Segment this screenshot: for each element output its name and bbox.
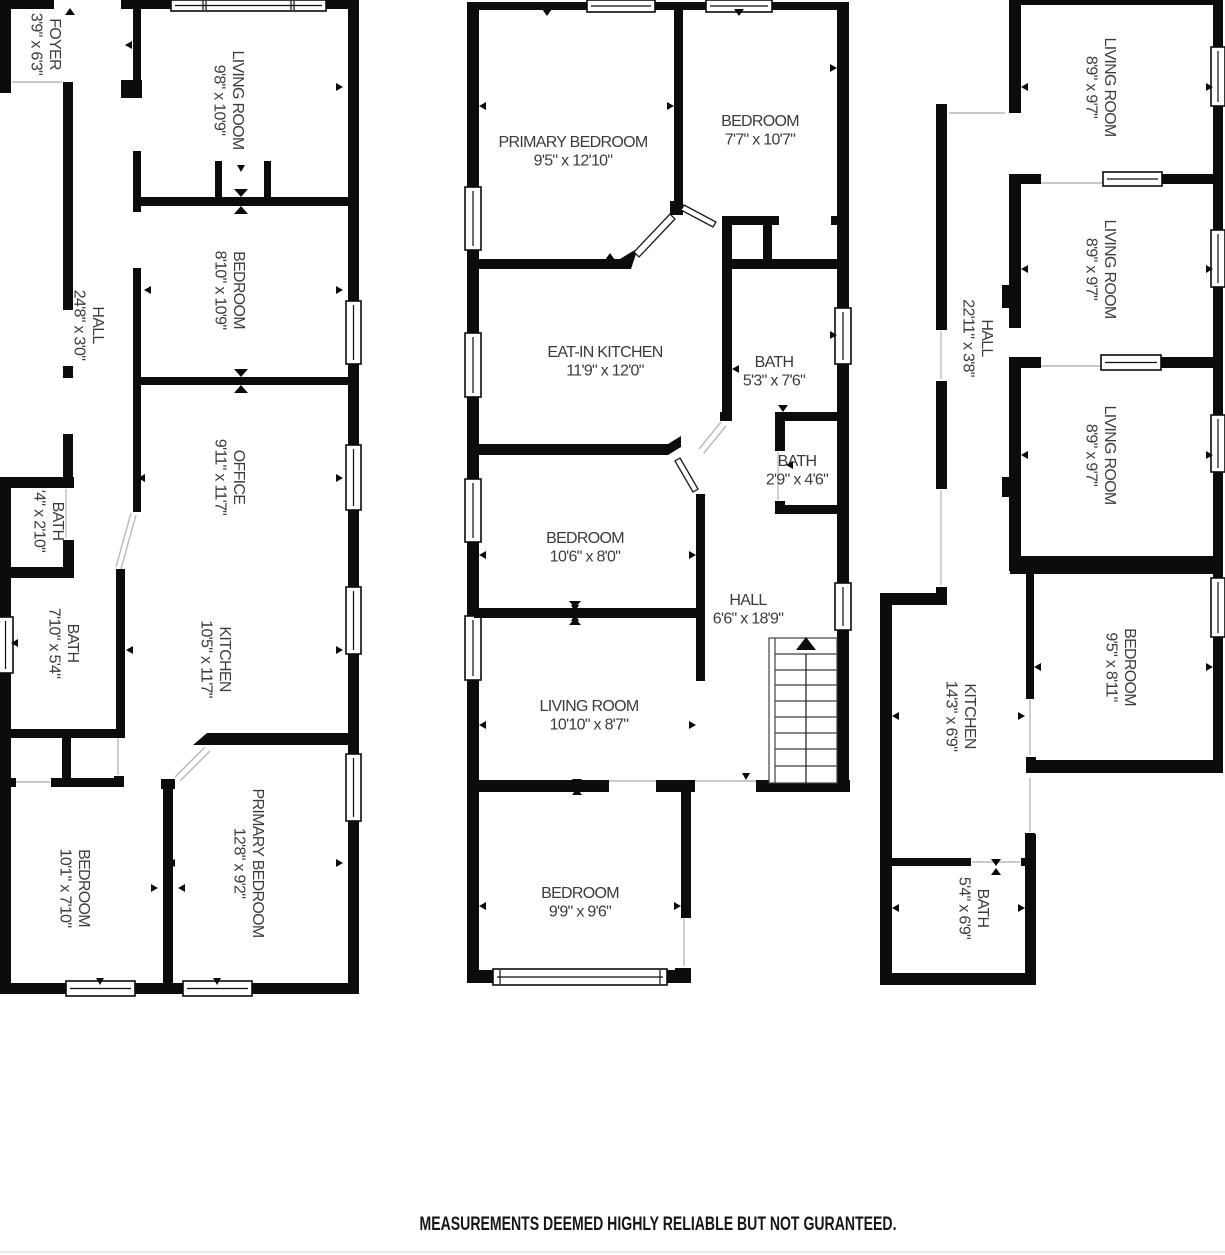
svg-text:2'9" x 4'6": 2'9" x 4'6"	[766, 472, 828, 489]
svg-text:9'11" x 11'7": 9'11" x 11'7"	[212, 439, 229, 515]
svg-text:8'10" x 10'9": 8'10" x 10'9"	[212, 251, 229, 330]
svg-text:14'3" x 6'9": 14'3" x 6'9"	[943, 681, 960, 751]
svg-text:'4" x 2'10": '4" x 2'10"	[31, 490, 48, 552]
svg-text:10'5" x 11'7": 10'5" x 11'7"	[198, 620, 215, 697]
svg-text:BATH: BATH	[49, 502, 66, 541]
svg-text:BATH: BATH	[755, 354, 794, 371]
svg-text:EAT-IN KITCHEN: EAT-IN KITCHEN	[547, 344, 662, 361]
svg-text:12'8" x 9'2": 12'8" x 9'2"	[231, 828, 248, 898]
svg-text:5'3" x 7'6": 5'3" x 7'6"	[743, 373, 805, 390]
svg-text:PRIMARY BEDROOM: PRIMARY BEDROOM	[249, 789, 266, 938]
svg-text:BEDROOM: BEDROOM	[1121, 628, 1138, 706]
svg-text:5'4" x 6'9": 5'4" x 6'9"	[956, 877, 973, 939]
svg-text:10'1" x 7'10": 10'1" x 7'10"	[57, 849, 74, 928]
svg-text:9'9" x 9'6": 9'9" x 9'6"	[549, 904, 611, 921]
svg-text:10'10" x 8'7": 10'10" x 8'7"	[550, 717, 629, 734]
svg-text:OFFICE: OFFICE	[230, 450, 247, 504]
svg-text:6'6" x 18'9": 6'6" x 18'9"	[713, 611, 783, 628]
svg-text:BEDROOM: BEDROOM	[541, 885, 619, 902]
svg-text:BEDROOM: BEDROOM	[75, 849, 92, 927]
svg-text:LIVING ROOM: LIVING ROOM	[540, 698, 639, 715]
svg-text:9'5" x 12'10": 9'5" x 12'10"	[534, 153, 613, 170]
svg-text:HALL: HALL	[89, 306, 106, 344]
svg-text:BEDROOM: BEDROOM	[721, 113, 799, 130]
svg-text:9'8" x 10'9": 9'8" x 10'9"	[211, 65, 228, 135]
svg-text:7'7" x 10'7": 7'7" x 10'7"	[725, 132, 795, 149]
svg-text:LIVING ROOM: LIVING ROOM	[229, 51, 246, 150]
svg-text:24'8" x 3'0": 24'8" x 3'0"	[71, 290, 88, 360]
svg-text:KITCHEN: KITCHEN	[216, 626, 233, 691]
svg-text:BEDROOM: BEDROOM	[230, 251, 247, 329]
svg-text:KITCHEN: KITCHEN	[961, 683, 978, 748]
svg-text:7'10" x 5'4": 7'10" x 5'4"	[46, 608, 63, 678]
svg-text:22'11" x 3'8": 22'11" x 3'8"	[960, 299, 977, 376]
svg-text:LIVING ROOM: LIVING ROOM	[1101, 220, 1118, 319]
svg-text:HALL: HALL	[729, 592, 767, 609]
svg-text:11'9" x 12'0": 11'9" x 12'0"	[566, 363, 643, 380]
svg-text:LIVING ROOM: LIVING ROOM	[1101, 406, 1118, 505]
svg-text:9'5" x 8'11": 9'5" x 8'11"	[1103, 632, 1120, 701]
svg-text:BATH: BATH	[778, 453, 817, 470]
svg-text:3'9" x 6'3": 3'9" x 6'3"	[28, 13, 45, 75]
svg-text:HALL: HALL	[978, 319, 995, 357]
svg-text:MEASUREMENTS DEEMED HIGHLY REL: MEASUREMENTS DEEMED HIGHLY RELIABLE BUT …	[420, 1213, 897, 1235]
svg-text:10'6" x 8'0": 10'6" x 8'0"	[550, 549, 620, 566]
svg-text:8'9" x 9'7": 8'9" x 9'7"	[1083, 56, 1100, 118]
svg-text:8'9" x 9'7": 8'9" x 9'7"	[1083, 424, 1100, 486]
svg-text:BATH: BATH	[974, 889, 991, 928]
svg-text:FOYER: FOYER	[46, 18, 63, 70]
svg-text:LIVING ROOM: LIVING ROOM	[1101, 38, 1118, 137]
svg-text:BEDROOM: BEDROOM	[546, 530, 624, 547]
svg-text:8'9" x 9'7": 8'9" x 9'7"	[1083, 238, 1100, 300]
svg-text:PRIMARY BEDROOM: PRIMARY BEDROOM	[499, 134, 648, 151]
svg-text:BATH: BATH	[64, 624, 81, 663]
